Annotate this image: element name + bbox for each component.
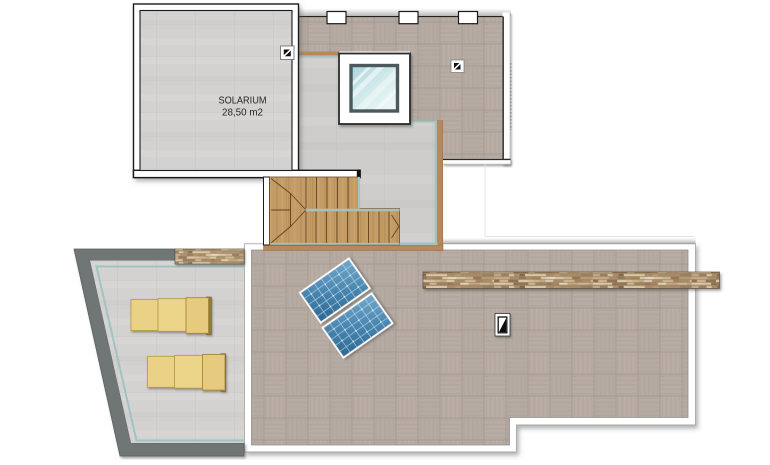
svg-text:28,50 m2: 28,50 m2: [222, 107, 263, 119]
svg-text:SOLARIUM: SOLARIUM: [219, 95, 267, 107]
